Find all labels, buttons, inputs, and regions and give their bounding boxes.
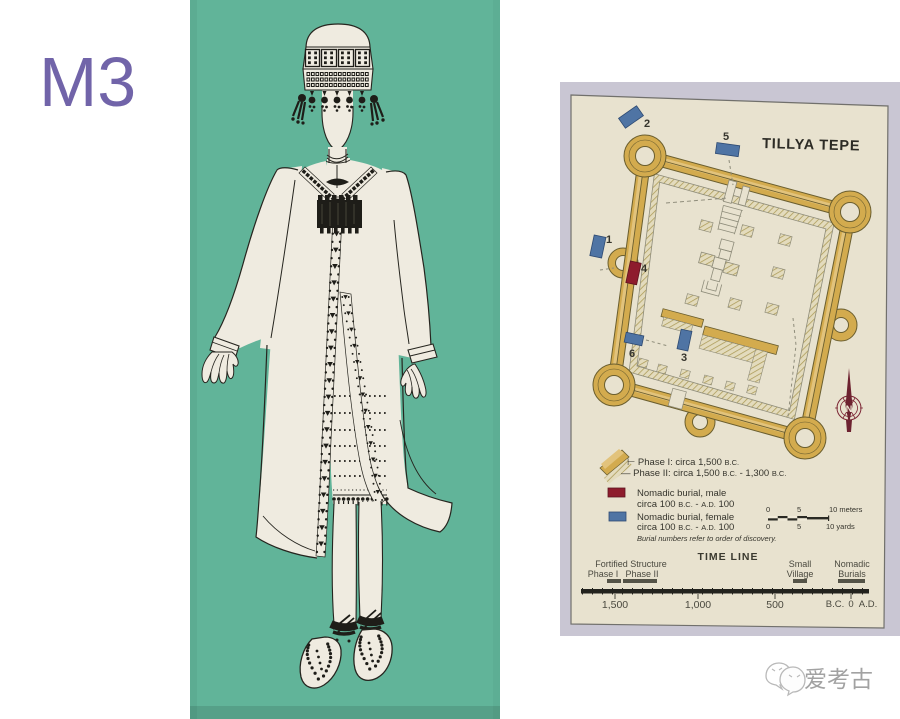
svg-text:Phase I: Phase I — [588, 569, 619, 579]
svg-text:10 meters: 10 meters — [829, 505, 863, 514]
svg-text:Burials: Burials — [838, 569, 866, 579]
svg-text:3: 3 — [681, 352, 687, 364]
svg-text:5: 5 — [797, 522, 801, 531]
svg-text:0: 0 — [848, 599, 853, 610]
svg-text:5: 5 — [797, 505, 801, 514]
svg-text:Village: Village — [787, 569, 814, 579]
svg-text:circa 100 B.C. - A.D. 100: circa 100 B.C. - A.D. 100 — [637, 522, 734, 533]
svg-text:爱考古: 爱考古 — [804, 666, 873, 692]
svg-text:N: N — [846, 404, 853, 414]
svg-text:TILLYA TEPE: TILLYA TEPE — [762, 136, 861, 155]
svg-text:500: 500 — [766, 599, 784, 611]
svg-text:B.C.: B.C. — [826, 599, 844, 610]
svg-text:2: 2 — [644, 118, 650, 130]
svg-text:Nomadic: Nomadic — [834, 559, 870, 569]
svg-text:TIME LINE: TIME LINE — [698, 551, 759, 563]
svg-text:1,500: 1,500 — [602, 599, 628, 611]
svg-text:Burial numbers refer to order: Burial numbers refer to order of discove… — [637, 534, 777, 543]
svg-text:5: 5 — [723, 131, 729, 143]
svg-text:Small: Small — [789, 559, 812, 569]
svg-text:Nomadic burial, male: Nomadic burial, male — [637, 488, 726, 499]
svg-text:Fortified Structure: Fortified Structure — [595, 559, 667, 569]
svg-text:0: 0 — [766, 522, 770, 531]
svg-text:4: 4 — [641, 263, 648, 275]
svg-text:1: 1 — [606, 234, 612, 246]
svg-text:— Phase II: circa 1,500 B.C. -: — Phase II: circa 1,500 B.C. - 1,300 B.C… — [621, 468, 786, 479]
svg-text:circa 100 B.C. - A.D. 100: circa 100 B.C. - A.D. 100 — [637, 499, 734, 510]
svg-text:0: 0 — [766, 505, 770, 514]
svg-text:Phase II: Phase II — [625, 569, 658, 579]
svg-text:⊢ Phase I: circa 1,500 B.C.: ⊢ Phase I: circa 1,500 B.C. — [627, 457, 739, 468]
svg-text:1,000: 1,000 — [685, 599, 711, 611]
svg-text:6: 6 — [629, 348, 635, 360]
svg-text:A.D.: A.D. — [859, 599, 877, 610]
svg-text:10 yards: 10 yards — [826, 522, 855, 531]
